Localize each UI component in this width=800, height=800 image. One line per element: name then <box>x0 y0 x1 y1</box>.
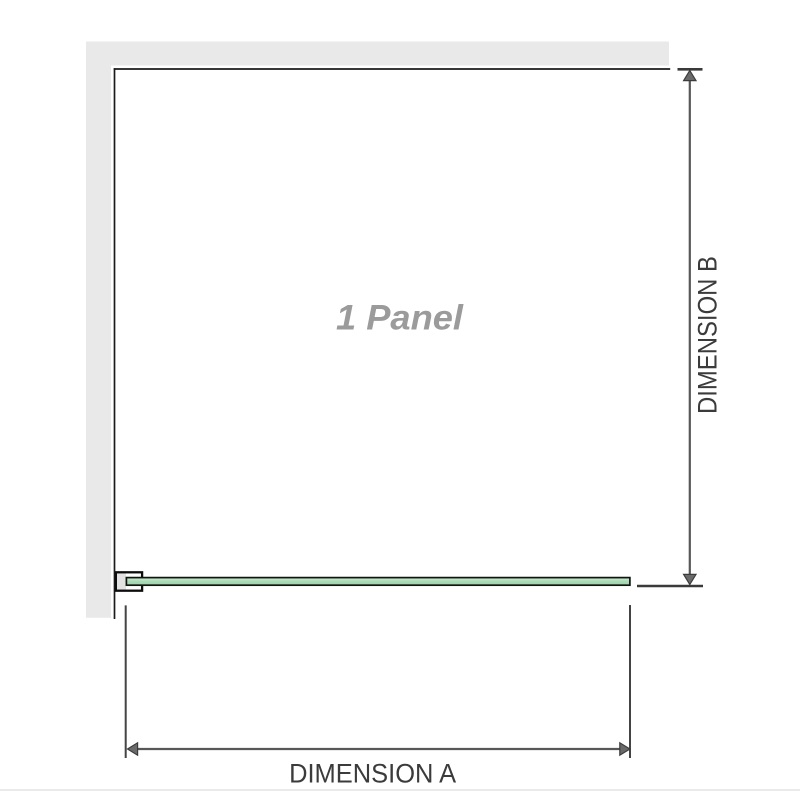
svg-text:1 Panel: 1 Panel <box>336 298 464 338</box>
svg-text:DIMENSION A: DIMENSION A <box>289 758 456 788</box>
svg-text:DIMENSION B: DIMENSION B <box>692 256 722 414</box>
